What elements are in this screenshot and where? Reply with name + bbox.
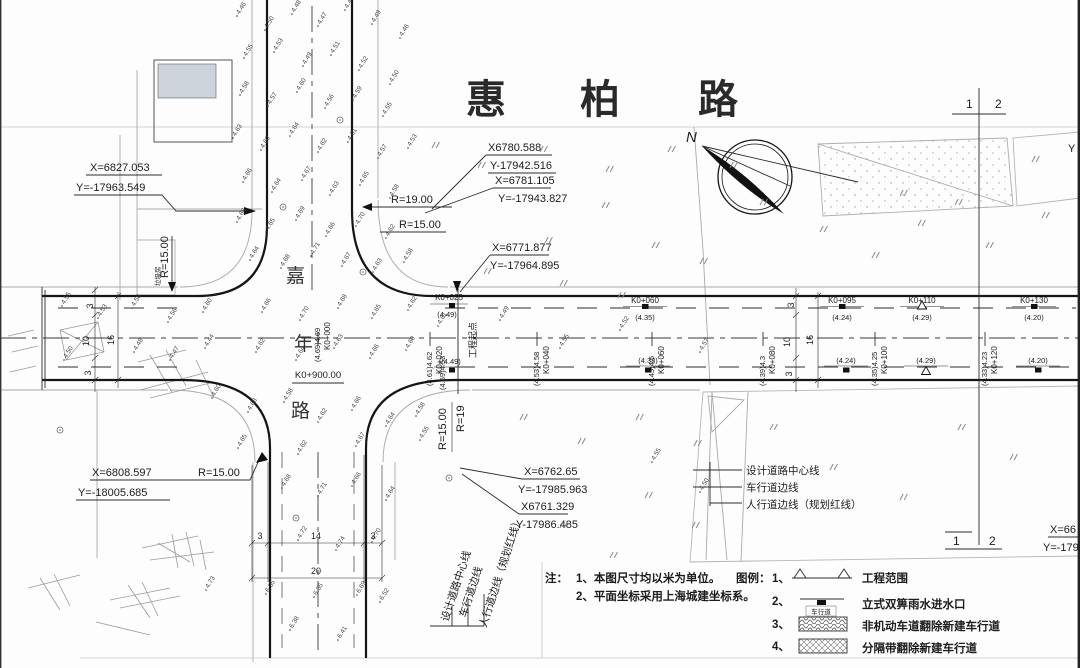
label-design-centerline: 设计道路中心线 <box>746 464 820 477</box>
nonmotor-rebuild-hatch <box>799 617 847 631</box>
spot-elevation: 4.62 <box>296 439 309 454</box>
station-label: K0+040 <box>542 346 551 374</box>
spot-elevation: 4.59 <box>351 85 364 100</box>
spot-elevation: 4.52 <box>618 315 631 330</box>
spot-elevation: 4.66 <box>350 395 363 410</box>
legend-item2-symbol-label: 车行道 <box>811 607 831 616</box>
spot-elevation: 4.51 <box>329 40 342 55</box>
spot-elevation: 4.60 <box>404 335 417 350</box>
dim-bottom: 3 <box>257 531 262 541</box>
spot-elevation: 4.63 <box>328 180 341 195</box>
spot-elevation: 4.65 <box>358 170 371 185</box>
spot-elevation: 4.62 <box>384 223 397 238</box>
ditto-mark <box>610 552 617 558</box>
station-elevation: (4.53)4.58 <box>532 352 541 386</box>
legend-prefix: 图例： <box>736 571 771 585</box>
callout-ne-c-y: Y=-17964.895 <box>490 260 559 272</box>
spot-elevation: 4.58 <box>402 247 415 262</box>
spot-elevation: 4.48 <box>290 0 303 14</box>
callout-se-a-y: Y=-17985.963 <box>518 484 587 496</box>
callout-ne-b-y: Y=-17943.827 <box>498 193 567 205</box>
stations-centerline: K0+000(4.69)4.69K0+020(4.61)4.62K0+040(4… <box>313 322 999 386</box>
spot-elevation: 4.48 <box>132 337 145 352</box>
title-char-1: 惠 <box>466 78 506 122</box>
spot-elevation: 4.67 <box>300 165 313 180</box>
spot-elevation: 4.47 <box>316 11 329 26</box>
station-label: K0+020 <box>435 346 444 374</box>
spot-elevation: 4.53 <box>406 133 419 148</box>
spot-elevation: 4.55 <box>381 101 394 116</box>
station-label: K0+000 <box>323 322 332 350</box>
station-elev-bottom: (4.29) <box>916 356 936 365</box>
spot-elevation: 4.66 <box>260 297 273 312</box>
compass-inner-circle <box>722 144 788 210</box>
callout-se-b-x: X6761.329 <box>521 501 574 513</box>
legend-item2-no: 2、 <box>772 596 790 608</box>
legend-item1-text: 工程范围 <box>862 571 908 585</box>
section-marker-top-1: 1 <box>966 97 973 111</box>
legend-item4-text: 分隔带翻除新建车行道 <box>862 641 977 655</box>
title-char-2: 柏 <box>580 78 620 122</box>
spot-elevation: 6.35 <box>264 579 277 594</box>
compass-outer-circle <box>718 140 792 214</box>
rain-inlet-marker <box>642 304 649 309</box>
project-extent-arrow-left <box>794 569 806 578</box>
station-elev-top: (4.20) <box>1024 313 1044 322</box>
ditto-mark <box>1032 156 1039 162</box>
ditto-mark <box>830 464 837 470</box>
spot-elevation: 4.56 <box>166 307 179 322</box>
spot-elevation: 4.61 <box>346 127 359 142</box>
spot-elevation: 4.72 <box>296 525 309 540</box>
rain-inlet-marker <box>1031 304 1038 309</box>
spot-elevation: 4.66 <box>324 221 337 236</box>
station-elevation: (4.35)4.25 <box>870 352 879 386</box>
stations-top-edge: K0+060(4.35)K0+095(4.24)K0+110(4.29)K0+1… <box>623 296 1056 322</box>
dim-right: 3 <box>786 302 796 307</box>
ditto-mark <box>694 440 701 446</box>
spot-elevation: 4.46 <box>398 23 411 38</box>
dim-bottom: 3 <box>370 531 375 541</box>
spot-elevation: 4.55 <box>60 291 73 306</box>
callout-se-a-x: X=6762.65 <box>524 466 578 478</box>
spot-elevation: 4.44 <box>203 333 216 348</box>
dim-left: 16 <box>106 335 116 345</box>
spot-elevation: 4.62 <box>316 137 329 152</box>
ditto-mark <box>900 494 907 500</box>
dim-left: 3 <box>85 303 95 308</box>
dimension-lines <box>92 287 821 582</box>
median-rebuild-hatch <box>799 639 847 653</box>
legend-item1-no: 1、 <box>772 573 790 585</box>
ditto-mark <box>668 146 675 152</box>
spot-elevation: 4.50 <box>263 15 276 30</box>
rain-inlet-symbol <box>817 600 826 605</box>
callout-ne-a-y: Y-17942.516 <box>490 160 552 172</box>
spot-elevation: 4.49 <box>498 305 511 320</box>
spot-elevation: 4.66 <box>368 343 381 358</box>
legend-item3-no: 3、 <box>772 619 790 631</box>
callout-sw-y: Y=-18005.685 <box>78 487 147 499</box>
legend-item3-text: 非机动车道翻除新建车行道 <box>862 619 1000 633</box>
spot-elevation: 4.55 <box>418 425 431 440</box>
spot-elevation: 4.70 <box>354 211 367 226</box>
cad-road-plan-drawing: 1 2 1 2 N 惠 柏 路 嘉 年 路 K0+900.00 X=6827.0… <box>0 0 1080 668</box>
spot-elevation: 4.63 <box>231 123 244 138</box>
dim-bottom: 14 <box>311 531 321 541</box>
ditto-mark <box>986 242 993 248</box>
project-start-label: 工程起点 <box>468 322 478 358</box>
spot-elevation: 4.71 <box>309 241 322 256</box>
spot-elevation: 4.67 <box>340 251 353 266</box>
ditto-mark <box>636 414 643 420</box>
station-elevation: (4.61)4.62 <box>425 352 434 386</box>
dim-right: 16 <box>805 335 815 345</box>
dim-left: 10 <box>81 336 91 346</box>
note-line-2: 2、平面坐标采用上海城建坐标系。 <box>576 589 755 603</box>
spot-elevation: 4.49 <box>370 9 383 24</box>
spot-elevation: 4.52 <box>357 55 370 70</box>
compass-needle <box>702 146 784 214</box>
plan-canvas: 1 2 1 2 N 惠 柏 路 嘉 年 路 K0+900.00 X=6827.0… <box>0 0 1080 668</box>
spot-elevation: 4.62 <box>316 407 329 422</box>
ditto-mark <box>520 414 527 420</box>
ditto-mark <box>918 220 925 226</box>
parcel-triangle <box>708 396 744 432</box>
spot-elevation: 4.55 <box>242 43 255 58</box>
callout-edge-y: Y=-179 <box>1043 542 1079 554</box>
legend-block: 图例： 1、 工程范围 2、 车行道 立式双箅雨水进水口 3、 非机动车道翻除新… <box>736 569 1000 655</box>
project-start-station: K0+025 (4.49) (4.49) (4.59)4.53 工程起点 <box>430 293 478 390</box>
ditto-mark <box>1010 454 1017 460</box>
spot-elevation: 4.60 <box>295 77 308 92</box>
dim-right: 10 <box>782 337 792 347</box>
dim-bottom-total: 20 <box>311 566 321 576</box>
parcel-linework <box>0 0 1080 662</box>
station-elev-top: (4.35) <box>635 313 655 322</box>
spot-elevation: 4.58 <box>414 401 427 416</box>
spot-elevation: 4.74 <box>334 535 347 550</box>
page-title: 惠 柏 路 <box>466 78 739 122</box>
notes-block: 注： 1、本图尺寸均以米为单位。 2、平面坐标采用上海城建坐标系。 <box>545 571 755 603</box>
hatched-parcel <box>818 138 1013 216</box>
station-elev-bottom: (4.20) <box>1028 356 1048 365</box>
ditto-mark <box>820 226 827 232</box>
spot-elevation: 6.38 <box>288 615 301 630</box>
spot-elevation: 4.58 <box>282 387 295 402</box>
spot-elevation: 4.63 <box>371 257 384 272</box>
spot-elevation: 4.60 <box>201 297 214 312</box>
spot-elevation: 4.68 <box>280 473 293 488</box>
station-label: K0+060 <box>657 346 666 374</box>
ditto-mark <box>560 280 567 286</box>
ditto-mark <box>602 202 609 208</box>
station-elev-top: (4.29) <box>912 313 932 322</box>
spot-elevation: 6.52 <box>378 587 391 602</box>
spot-elevation: 4.68 <box>336 293 349 308</box>
spot-elevation: 4.50 <box>388 69 401 84</box>
spot-elevation: 4.64 <box>288 121 301 136</box>
spot-elevation: 6.35 <box>312 582 325 597</box>
station-label: K0+120 <box>990 346 999 374</box>
spot-elevation: 4.53 <box>96 303 109 318</box>
notes-prefix2: 注： <box>545 571 568 585</box>
spot-elevation: 4.57 <box>698 337 711 352</box>
ditto-mark <box>478 162 485 168</box>
spot-elevation: 4.44 <box>343 0 356 10</box>
spot-elevation: 4.66 <box>350 471 363 486</box>
survey-marks <box>57 117 452 521</box>
section-marker-bottom-1: 1 <box>953 534 960 548</box>
spot-elevation: 4.58 <box>238 80 251 95</box>
section-marker-bottom-2: 2 <box>989 534 996 548</box>
label-sidewalk-redline: 人行道边线（规划红线） <box>746 498 862 511</box>
radius-se-inner: R=15.00 <box>437 408 449 450</box>
spot-elevation: 4.57 <box>266 91 279 106</box>
spot-elevation: 4.69 <box>294 205 307 220</box>
callout-ne-b-x: X=6781.105 <box>495 175 555 187</box>
spot-elevation: 6.41 <box>336 625 349 640</box>
radius-ne-outer: R=19.00 <box>391 194 433 206</box>
ditto-mark <box>652 242 659 248</box>
section-marker-top-2: 2 <box>995 97 1002 111</box>
legend-item2-text: 立式双箅雨水进水口 <box>862 597 966 611</box>
station-label: K0+080 <box>768 346 777 374</box>
building-label: 垃圾房 <box>153 267 162 287</box>
callout-se-b-y: Y-17986.485 <box>516 519 578 531</box>
ditto-mark <box>432 142 439 148</box>
project-start-station-label: K0+025 <box>435 293 463 302</box>
building-topleft <box>154 60 232 142</box>
station-label-top: K0+095 <box>828 296 856 305</box>
spot-elevation: 4.64 <box>270 177 283 192</box>
title-char-3: 路 <box>698 78 739 122</box>
spot-elevation: 4.65 <box>236 433 249 448</box>
north-label: N <box>686 129 697 146</box>
station-elev-bottom: (4.24) <box>836 356 856 365</box>
ditto-mark <box>606 166 613 172</box>
callout-sw-x: X=6808.597 <box>92 467 152 479</box>
ditto-mark <box>1042 212 1049 218</box>
callout-ne-a-x: X6780.588 <box>488 142 541 154</box>
spot-elevation: 4.56 <box>323 93 336 108</box>
legend-item4-no: 4、 <box>772 641 790 653</box>
rain-inlet-marker <box>645 368 652 373</box>
ditto-mark <box>958 424 965 430</box>
spot-elevation: 4.46 <box>235 1 248 16</box>
callout-nw-x: X=6827.053 <box>90 162 150 174</box>
dim-right: 3 <box>784 371 794 376</box>
spot-elevation: 4.55 <box>558 333 571 348</box>
radius-se-outer: R=19 <box>455 405 467 432</box>
station-elevation: (4.39)4.3 <box>758 356 767 386</box>
rain-inlet-marker <box>843 368 850 373</box>
dim-left: 3 <box>83 370 93 375</box>
station-elev-top: (4.24) <box>832 313 852 322</box>
spot-elevation: 4.73 <box>204 575 217 590</box>
project-extent-arrow-right <box>838 569 850 578</box>
rain-inlet-marker <box>839 304 846 309</box>
ditto-mark <box>770 424 777 430</box>
callout-edge-x: X=66 <box>1050 524 1076 536</box>
line-type-labels-rotated: 设计道路中心线 车行道边线 人行道边线（规划红线） <box>430 515 525 629</box>
spot-elevation: 4.50 <box>62 345 75 360</box>
station-elevation: (4.33)4.23 <box>980 352 989 386</box>
radius-sw: R=15.00 <box>198 467 240 479</box>
road-linework <box>0 0 1080 658</box>
station-elevation: (4.69)4.69 <box>313 328 322 362</box>
spot-elevation: 4.70 <box>298 305 311 320</box>
cross-road-char-3: 路 <box>291 400 310 422</box>
station-label-top: K0+130 <box>1020 296 1048 305</box>
ditto-mark <box>872 252 879 258</box>
triangle-marker <box>922 367 931 375</box>
callout-nw-y: Y=-17963.549 <box>76 182 145 194</box>
spot-elevation: 4.53 <box>272 37 285 52</box>
station-elev-bottom: (4.38) <box>638 356 658 365</box>
note-line-1: 1、本图尺寸均以米为单位。 <box>576 571 720 585</box>
spot-elevation: 4.47 <box>168 345 181 360</box>
spot-elevation: 4.55 <box>650 447 663 462</box>
label-carriageway-edge: 车行道边线 <box>746 481 799 494</box>
callout-ne-c-x: X=6771.877 <box>492 242 552 254</box>
cross-road-station: K0+900.00 <box>295 370 341 381</box>
station-label: K0+100 <box>880 346 889 374</box>
spot-elevation: 4.71 <box>316 481 329 496</box>
spot-elevation: 4.60 <box>259 135 272 150</box>
spot-elevation: 4.62 <box>254 337 267 352</box>
station-label-top: K0+060 <box>631 296 659 305</box>
edge-partial-y-label: Y <box>1068 143 1076 155</box>
spot-elevation: 4.63 <box>332 333 345 348</box>
radius-ne-inner: R=15.00 <box>399 219 441 231</box>
rain-inlet-marker <box>1035 368 1042 373</box>
cross-road-char-1: 嘉 <box>286 265 305 287</box>
ditto-mark <box>645 492 652 498</box>
spot-elevation: 4.65 <box>370 303 383 318</box>
line-type-labels-right: 设计道路中心线 车行道边线 人行道边线（规划红线） <box>693 462 862 511</box>
spot-elevation: 4.64 <box>248 245 261 260</box>
spot-elevation: 4.62 <box>406 295 419 310</box>
ditto-mark <box>578 438 585 444</box>
